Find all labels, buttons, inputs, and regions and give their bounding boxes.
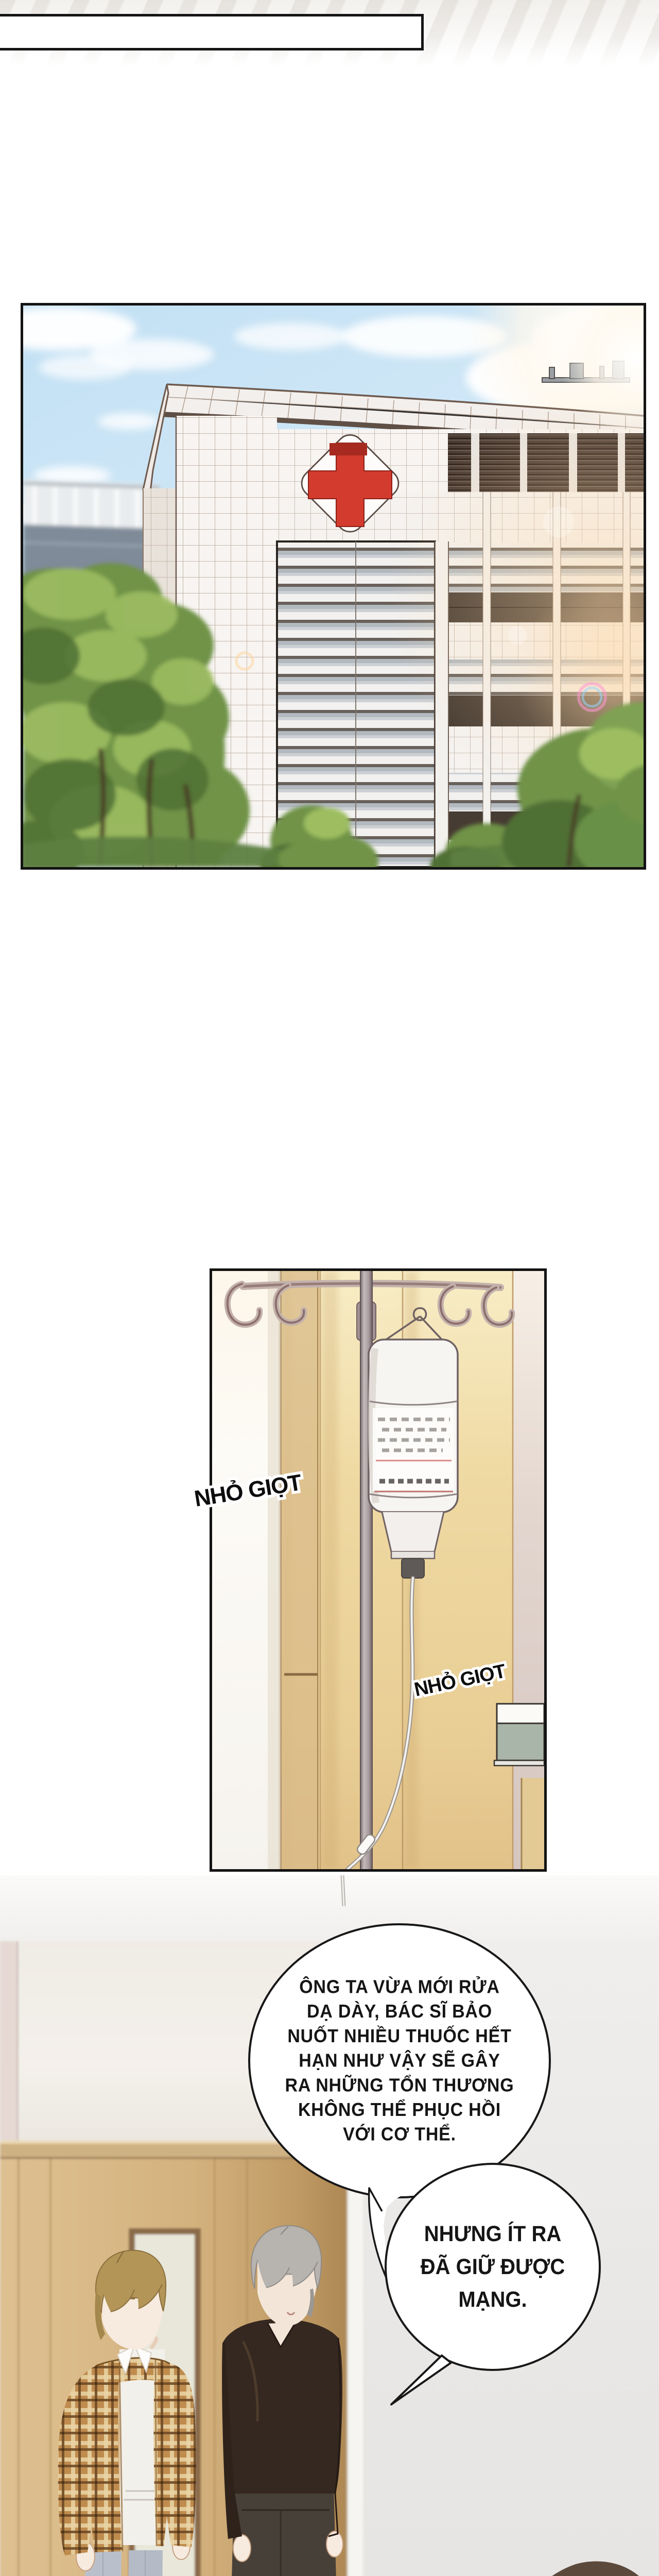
svg-text:NHỎ GIỌT: NHỎ GIỌT (412, 1659, 508, 1701)
svg-text:NHỎ GIỌT: NHỎ GIỌT (193, 1469, 304, 1512)
